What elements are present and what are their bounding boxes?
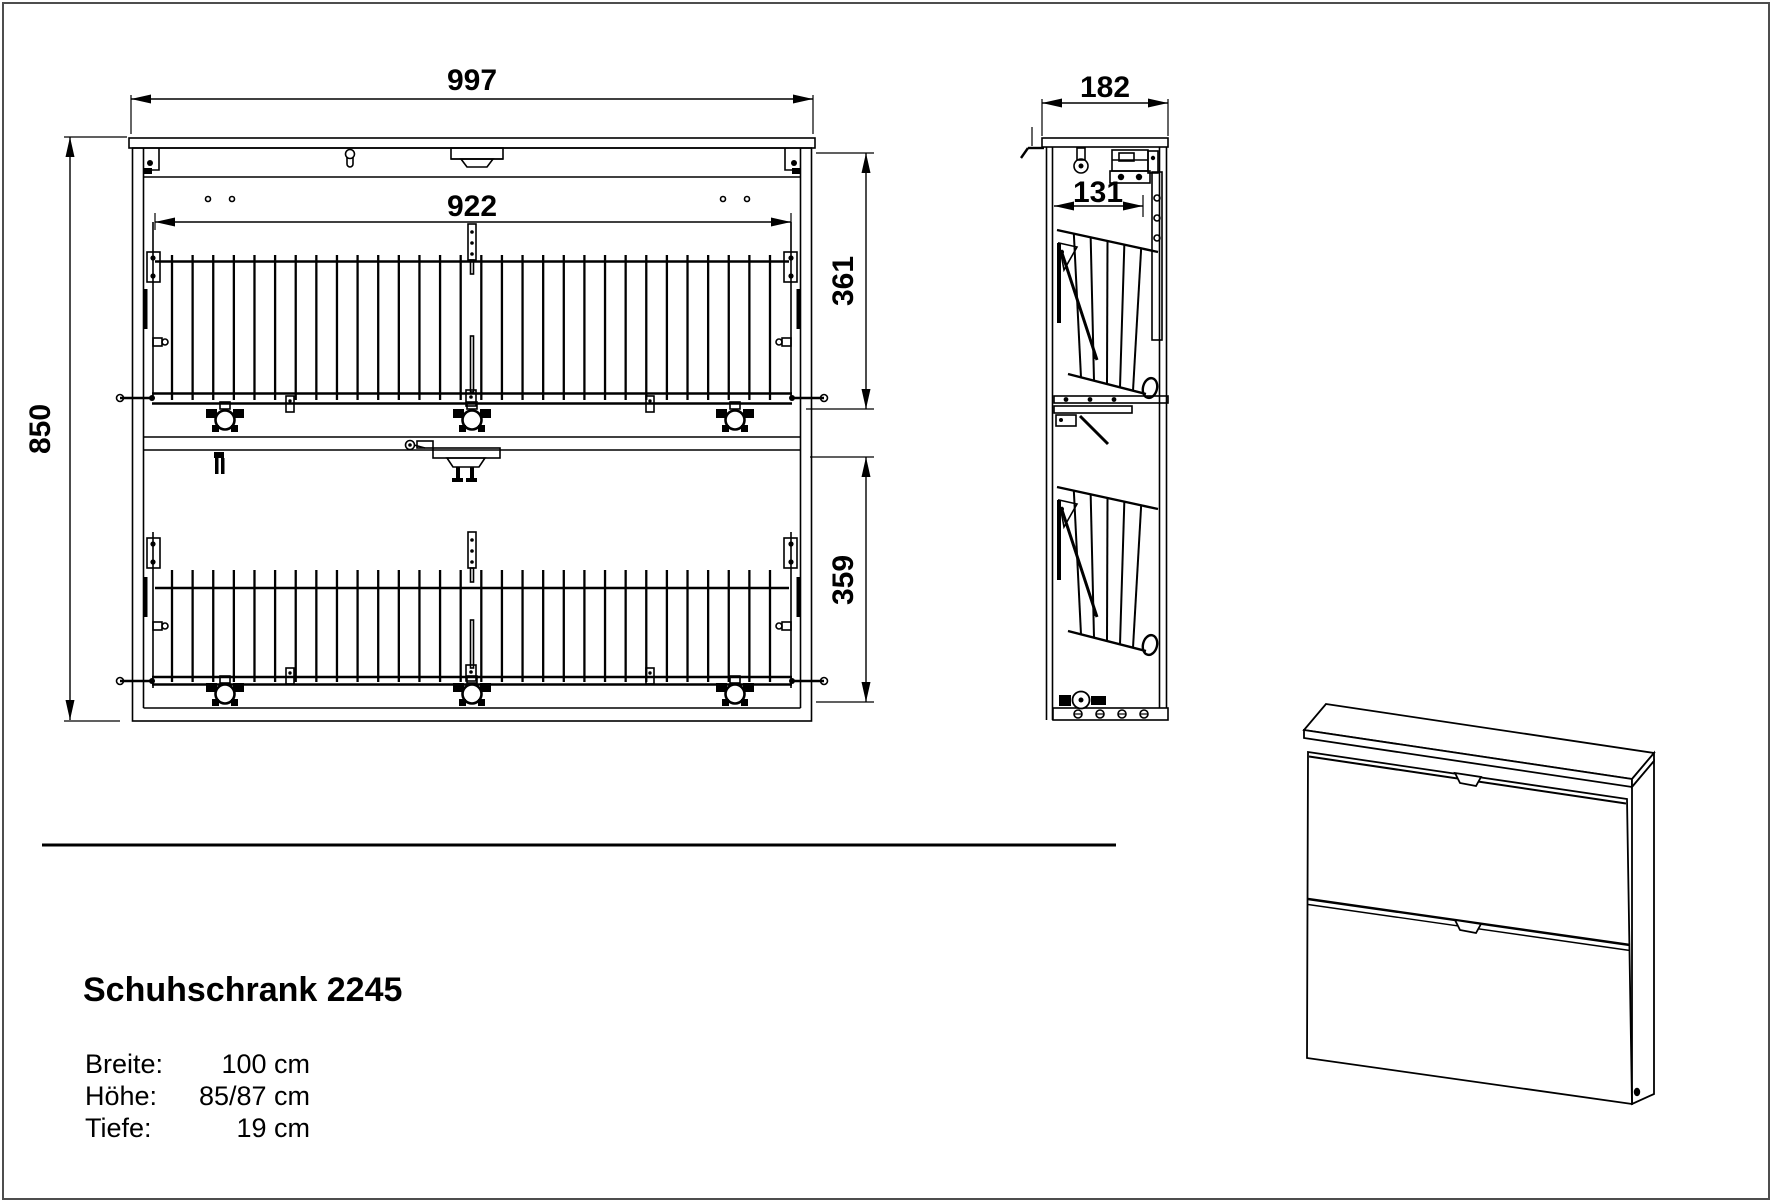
dimension-359: 359 — [810, 457, 874, 702]
dimension-997: 997 — [131, 64, 813, 134]
spec-value-hoehe: 85/87 cm — [199, 1081, 310, 1111]
side-lower-basket — [1057, 487, 1159, 656]
hinge-rail-strip — [1152, 172, 1162, 340]
dim-label-359: 359 — [827, 555, 860, 605]
cabinet-side-face — [1632, 761, 1654, 1104]
dim-label-361: 361 — [827, 256, 860, 306]
dim-label-850: 850 — [24, 404, 57, 454]
dimension-131: 131 — [1054, 176, 1143, 217]
dim-label-131: 131 — [1073, 176, 1123, 209]
upper-wire-rack — [117, 222, 828, 412]
keyhole-slot — [346, 150, 355, 168]
middle-latch-hardware — [214, 441, 500, 483]
dim-label-922: 922 — [447, 190, 497, 223]
front-view: 997 850 — [24, 64, 874, 721]
dim-label-997: 997 — [447, 64, 497, 97]
dimension-850: 850 — [24, 137, 127, 721]
dim-label-182: 182 — [1080, 71, 1130, 104]
spec-value-breite: 100 cm — [221, 1049, 310, 1079]
spec-label-breite: Breite: — [85, 1049, 163, 1079]
spec-value-tiefe: 19 cm — [236, 1113, 310, 1143]
spec-label-tiefe: Tiefe: — [85, 1113, 152, 1143]
side-bottom-roller — [1059, 692, 1106, 709]
lower-rack-rollers — [206, 676, 754, 706]
top-latch — [451, 148, 503, 167]
side-upper-basket — [1057, 230, 1159, 399]
technical-drawing-page: 997 850 — [0, 0, 1770, 1200]
dimension-182: 182 — [1042, 71, 1168, 136]
side-view: 182 — [1021, 71, 1168, 720]
perspective-view — [1304, 704, 1654, 1104]
cabinet-foot — [1634, 1088, 1640, 1096]
spec-label-hoehe: Höhe: — [85, 1081, 157, 1111]
lower-wire-rack — [117, 532, 828, 688]
bottom-screws — [1074, 710, 1148, 718]
dimension-361: 361 — [806, 153, 874, 409]
product-title: Schuhschrank 2245 — [83, 971, 402, 1009]
drawing-canvas: 997 850 — [0, 0, 1770, 1200]
upper-rack-rollers — [206, 402, 754, 432]
spec-list: Breite: 100 cm Höhe: 85/87 cm Tiefe: 19 … — [85, 1049, 310, 1143]
side-middle-hardware — [1054, 396, 1168, 444]
